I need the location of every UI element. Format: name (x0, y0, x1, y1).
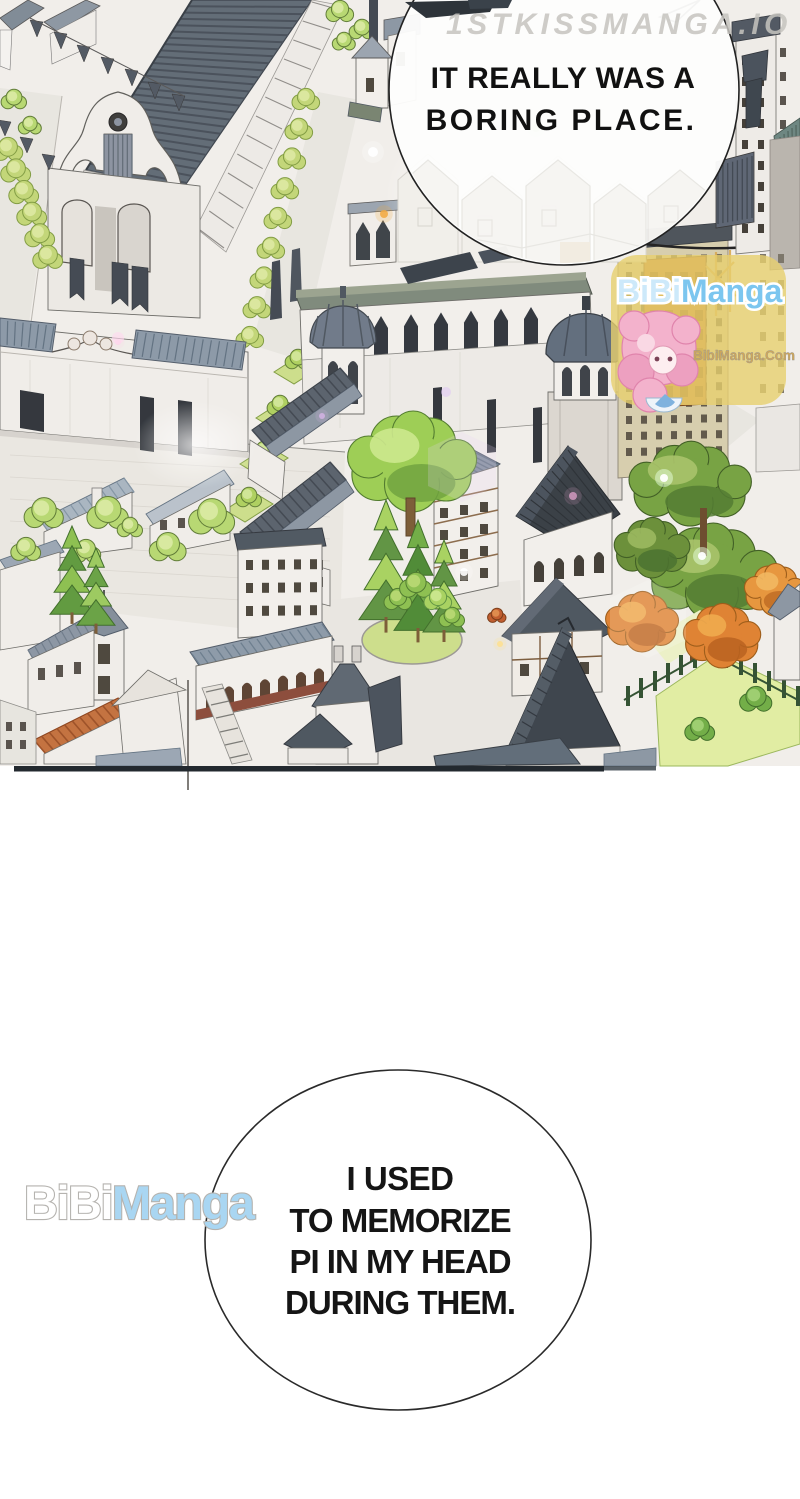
svg-text:BORING PLACE.: BORING PLACE. (426, 104, 697, 137)
svg-text:PI IN MY HEAD: PI IN MY HEAD (289, 1243, 510, 1280)
svg-text:TO MEMORIZE: TO MEMORIZE (289, 1202, 510, 1239)
svg-text:BiBiManga: BiBiManga (24, 1176, 256, 1229)
svg-text:IT REALLY WAS A: IT REALLY WAS A (431, 62, 696, 95)
svg-text:I USED: I USED (346, 1160, 453, 1197)
svg-text:DURING THEM.: DURING THEM. (285, 1284, 515, 1321)
svg-text:1STKISSMANGA.IO: 1STKISSMANGA.IO (446, 8, 792, 41)
svg-text:BibiManga.Com: BibiManga.Com (693, 348, 795, 363)
svg-text:BiBiManga: BiBiManga (617, 273, 783, 309)
